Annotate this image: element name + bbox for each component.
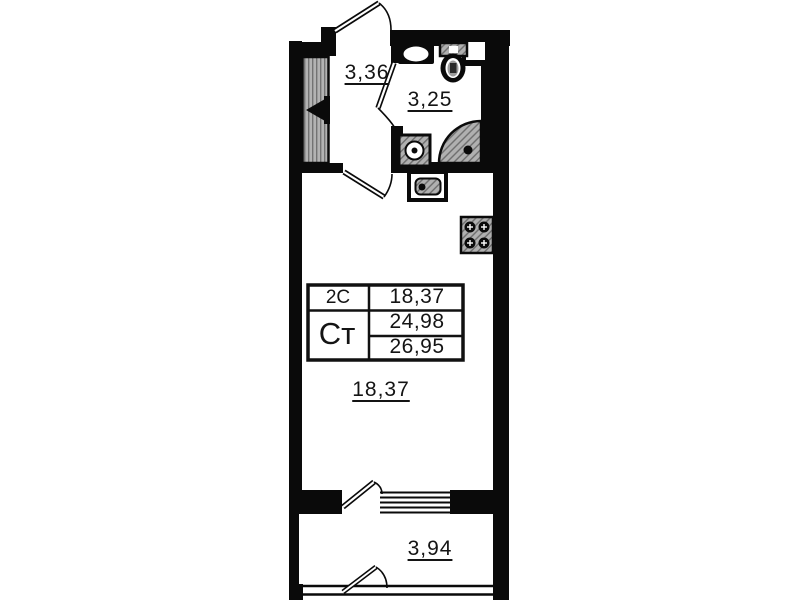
wall-bathroom-right — [481, 60, 493, 173]
washing-machine-symbol — [399, 135, 430, 166]
shower-drain-icon — [464, 146, 473, 155]
floor-plan: 3,36 3,25 18,37 3,94 2С Ст 18,37 24,98 2… — [0, 0, 799, 600]
wall-left — [289, 41, 302, 514]
stamp-type-label: Ст — [319, 316, 356, 352]
stamp-living-area: 18,37 — [389, 285, 444, 309]
kitchen-sink-symbol — [409, 172, 446, 200]
wall-hall-bottom — [289, 163, 343, 173]
wall-right — [493, 30, 509, 600]
toilet-symbol — [440, 43, 467, 83]
balcony-glazing-door — [343, 567, 387, 592]
wall-room-bottom-right — [450, 490, 493, 514]
balcony-glazing — [299, 586, 493, 595]
hall-room-door — [344, 172, 392, 197]
stamp-total-area: 26,95 — [389, 335, 444, 359]
stamp-area-excl-balcony: 24,98 — [389, 310, 444, 334]
stamp-type-code: 2С — [326, 287, 350, 309]
wall-room-bottom-left — [289, 490, 342, 514]
balcony-door — [343, 482, 382, 507]
bathroom-area-label: 3,25 — [408, 88, 453, 112]
hall-room-door-arc — [384, 174, 392, 197]
wardrobe-shaft-symbol — [303, 57, 331, 163]
window-living-room — [380, 493, 450, 513]
entrance-door-arc — [379, 3, 391, 30]
shaft-niche — [466, 42, 485, 60]
entrance-door — [335, 3, 391, 31]
wall-entry-stub — [321, 27, 336, 56]
bathroom-door-arc — [378, 108, 395, 128]
sink-drain-icon — [419, 184, 426, 191]
hall-area-label: 3,36 — [345, 61, 390, 85]
stove-symbol — [461, 217, 493, 253]
living-room-area-label: 18,37 — [352, 378, 410, 402]
shower-symbol — [439, 121, 481, 163]
balcony-area-label: 3,94 — [408, 537, 453, 561]
washbasin-symbol — [398, 43, 434, 64]
